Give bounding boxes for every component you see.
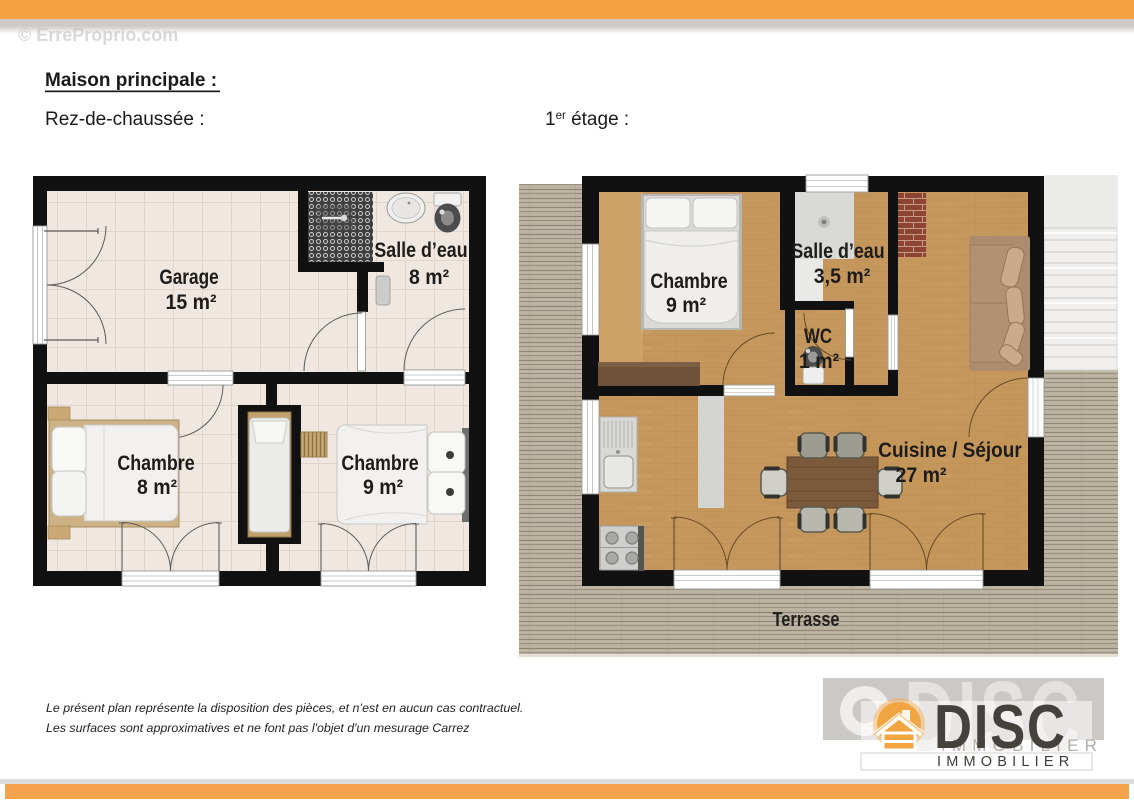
svg-text:IMMOBILIER: IMMOBILIER [937, 754, 1074, 770]
svg-text:9 m²: 9 m² [666, 294, 706, 317]
svg-text:8 m²: 8 m² [137, 476, 177, 499]
svg-text:9 m²: 9 m² [363, 476, 403, 499]
svg-text:Garage: Garage [159, 267, 219, 290]
svg-text:Chambre: Chambre [650, 270, 727, 294]
svg-text:27 m²: 27 m² [896, 464, 947, 487]
svg-text:1 m²: 1 m² [799, 350, 839, 373]
svg-text:Chambre: Chambre [117, 452, 194, 476]
svg-text:Le présent plan représente la: Le présent plan représente la dispositio… [46, 701, 523, 715]
svg-text:3,5 m²: 3,5 m² [814, 265, 871, 288]
svg-text:8 m²: 8 m² [409, 266, 449, 289]
svg-text:Cuisine / Séjour: Cuisine / Séjour [878, 439, 1022, 462]
svg-text:Salle d’eau: Salle d’eau [791, 240, 884, 264]
svg-text:DISC: DISC [934, 693, 1067, 762]
svg-text:Rez-de-chaussée :: Rez-de-chaussée : [45, 109, 204, 130]
svg-text:Maison principale :: Maison principale : [45, 70, 217, 91]
svg-text:Chambre: Chambre [341, 452, 418, 476]
svg-text:Salle d’eau: Salle d’eau [374, 239, 467, 263]
svg-text:WC: WC [804, 325, 832, 348]
svg-text:© ErreProprio.com: © ErreProprio.com [18, 25, 178, 45]
svg-text:15 m²: 15 m² [166, 291, 217, 314]
svg-text:Les surfaces sont approximativ: Les surfaces sont approximatives et ne f… [46, 721, 470, 735]
svg-text:Terrasse: Terrasse [772, 607, 839, 630]
